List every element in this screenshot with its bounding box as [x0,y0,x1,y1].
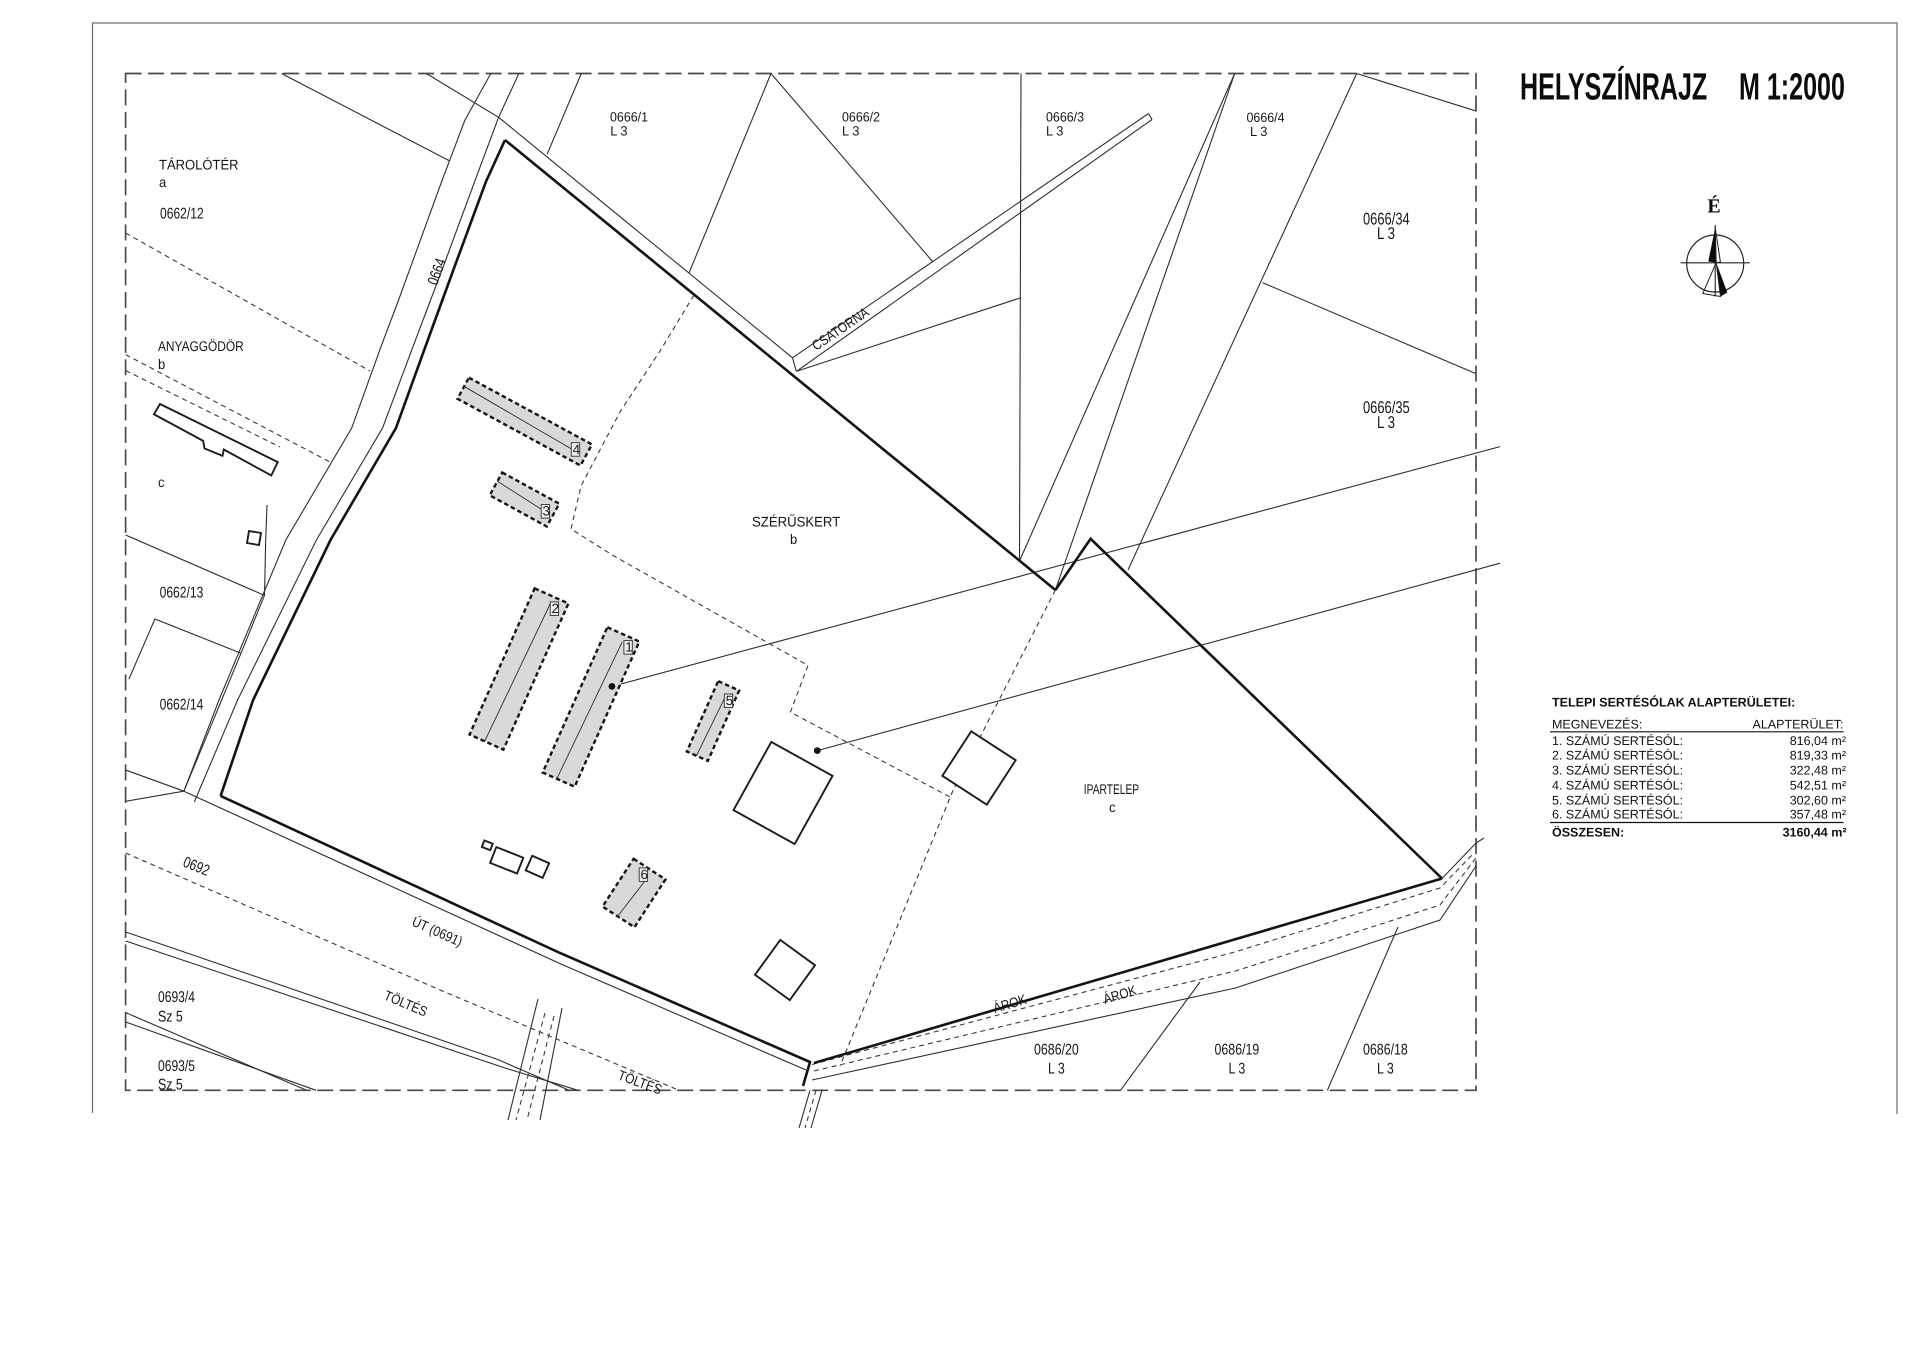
svg-text:L 3: L 3 [1048,1061,1065,1078]
svg-text:0666/4: 0666/4 [1247,110,1285,125]
svg-text:0686/20: 0686/20 [1034,1042,1079,1059]
svg-text:0662/14: 0662/14 [160,697,204,714]
svg-text:1. SZÁMÚ SERTÉSÓL:: 1. SZÁMÚ SERTÉSÓL: [1552,734,1683,748]
svg-text:L 3: L 3 [1046,123,1063,138]
svg-text:L 3: L 3 [1377,413,1395,432]
svg-text:L 3: L 3 [1250,124,1267,139]
svg-text:6: 6 [641,867,649,882]
svg-text:ANYAGGÖDÖR: ANYAGGÖDÖR [158,338,244,354]
svg-text:HELYSZÍNRAJZ: HELYSZÍNRAJZ [1520,65,1707,108]
svg-text:816,04 m²: 816,04 m² [1790,734,1846,748]
svg-text:L 3: L 3 [1229,1061,1246,1078]
svg-text:3. SZÁMÚ SERTÉSÓL:: 3. SZÁMÚ SERTÉSÓL: [1552,764,1683,778]
svg-text:0693/4: 0693/4 [158,989,195,1006]
svg-text:819,33 m²: 819,33 m² [1790,749,1846,763]
svg-text:3160,44 m²: 3160,44 m² [1783,826,1847,840]
svg-text:b: b [158,356,165,372]
svg-text:322,48 m²: 322,48 m² [1790,764,1846,778]
svg-text:5. SZÁMÚ SERTÉSÓL:: 5. SZÁMÚ SERTÉSÓL: [1552,794,1683,808]
svg-text:b: b [790,531,797,547]
svg-text:TÁROLÓTÉR: TÁROLÓTÉR [159,157,239,173]
svg-text:TELEPI SERTÉSÓLAK ALAPTERÜLETE: TELEPI SERTÉSÓLAK ALAPTERÜLETEI: [1552,695,1795,710]
svg-text:MEGNEVEZÉS:: MEGNEVEZÉS: [1552,718,1642,732]
svg-text:a: a [159,174,166,190]
svg-text:L 3: L 3 [1377,224,1395,243]
svg-text:302,60 m²: 302,60 m² [1790,794,1846,808]
svg-text:1: 1 [625,640,633,655]
svg-text:c: c [1109,799,1116,815]
svg-text:357,48 m²: 357,48 m² [1790,808,1846,822]
svg-text:542,51 m²: 542,51 m² [1790,779,1846,793]
svg-text:ÖSSZESEN:: ÖSSZESEN: [1552,826,1624,840]
svg-text:2: 2 [552,601,560,616]
svg-text:IPARTELEP: IPARTELEP [1084,781,1139,797]
svg-text:0693/5: 0693/5 [158,1058,195,1075]
svg-text:5: 5 [726,693,734,708]
svg-text:4: 4 [573,442,581,457]
svg-text:L 3: L 3 [842,123,859,138]
svg-text:L 3: L 3 [1377,1061,1394,1078]
svg-text:É: É [1707,195,1720,218]
svg-text:0662/13: 0662/13 [160,585,204,602]
svg-text:3: 3 [543,504,551,519]
svg-text:c: c [158,474,165,490]
svg-text:0666/3: 0666/3 [1046,109,1084,124]
svg-text:ALAPTERÜLET:: ALAPTERÜLET: [1752,718,1843,732]
svg-text:Sz 5: Sz 5 [158,1009,183,1026]
svg-text:0666/1: 0666/1 [610,109,648,124]
svg-text:0662/12: 0662/12 [160,205,204,222]
svg-text:SZÉRŰSKERT: SZÉRŰSKERT [752,514,841,530]
svg-text:0686/19: 0686/19 [1215,1042,1260,1059]
svg-text:L 3: L 3 [610,123,627,138]
svg-text:4. SZÁMÚ SERTÉSÓL:: 4. SZÁMÚ SERTÉSÓL: [1552,779,1683,793]
svg-text:0666/2: 0666/2 [842,109,880,124]
svg-text:0686/18: 0686/18 [1363,1042,1408,1059]
svg-text:2. SZÁMÚ SERTÉSÓL:: 2. SZÁMÚ SERTÉSÓL: [1552,749,1683,763]
svg-text:M 1:2000: M 1:2000 [1739,66,1845,108]
svg-text:Sz 5: Sz 5 [158,1077,183,1094]
svg-text:6. SZÁMÚ SERTÉSÓL:: 6. SZÁMÚ SERTÉSÓL: [1552,808,1683,822]
